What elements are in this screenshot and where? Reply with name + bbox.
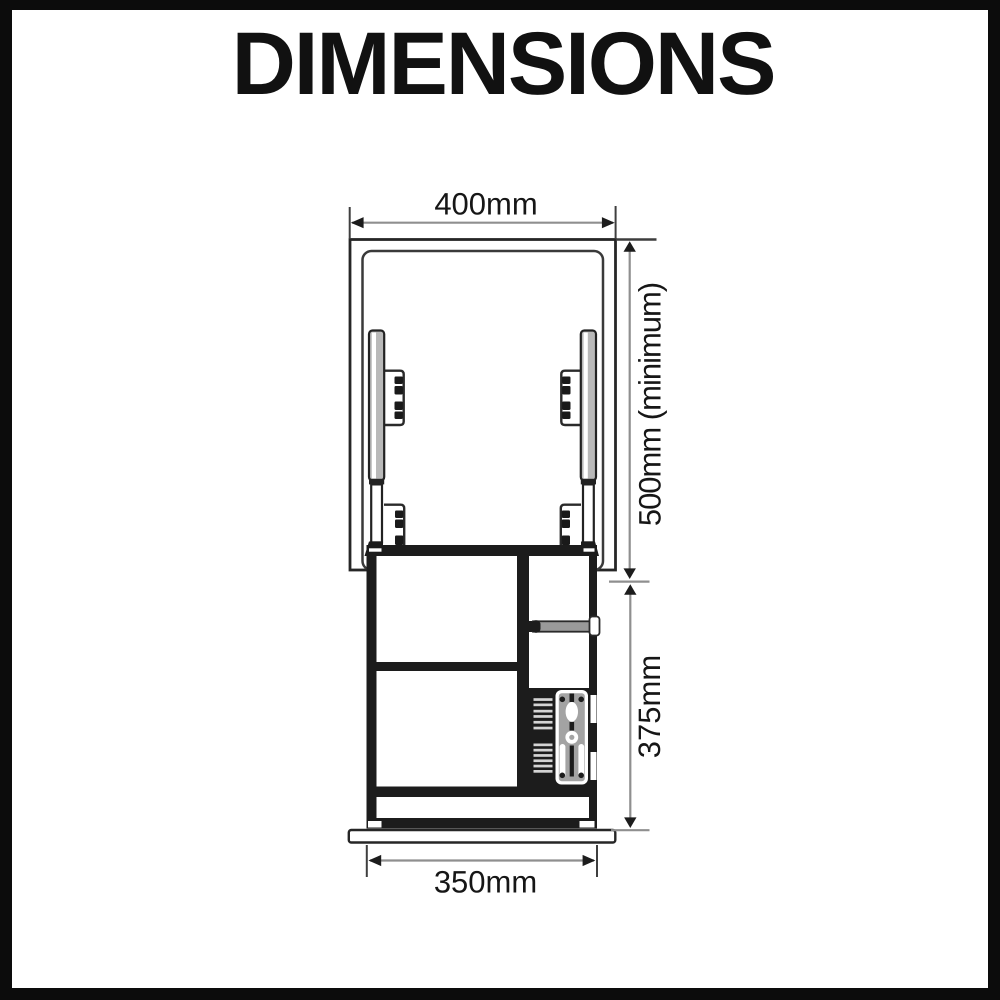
svg-text:DIMENSIONS: DIMENSIONS (232, 13, 775, 113)
svg-text:400mm: 400mm (434, 187, 537, 222)
svg-text:500mm (minimum): 500mm (minimum) (633, 283, 668, 526)
svg-text:375mm: 375mm (632, 655, 667, 758)
svg-text:350mm: 350mm (434, 865, 537, 900)
